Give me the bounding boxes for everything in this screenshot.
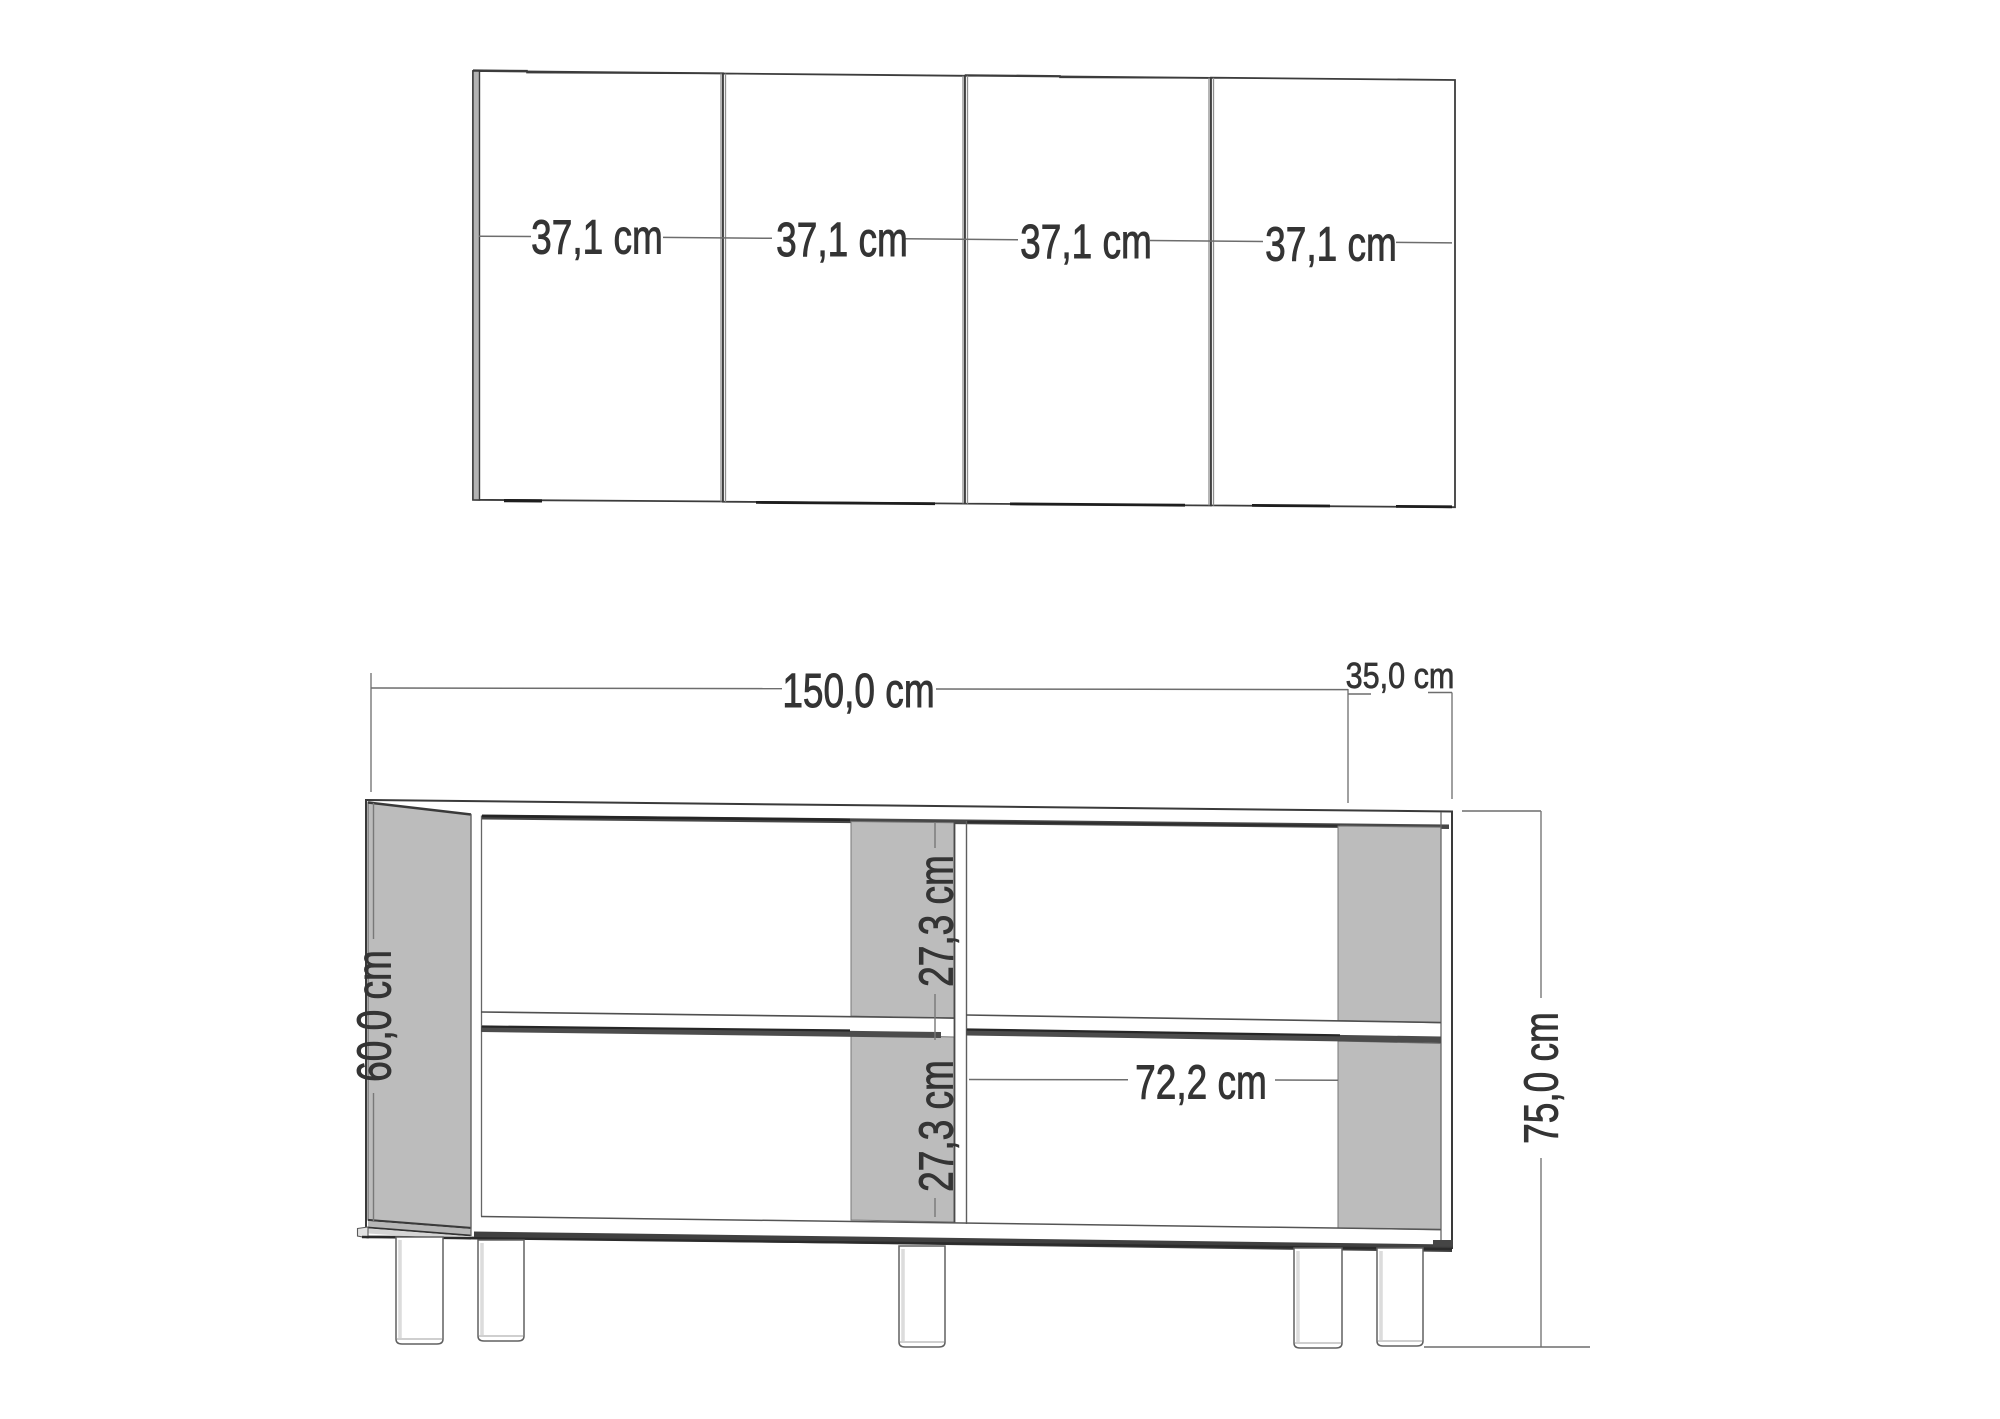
- svg-text:27,3 cm: 27,3 cm: [910, 855, 964, 987]
- svg-text:72,2 cm: 72,2 cm: [1135, 1056, 1267, 1110]
- svg-text:60,0 cm: 60,0 cm: [348, 950, 402, 1082]
- svg-text:37,1 cm: 37,1 cm: [1020, 216, 1152, 270]
- svg-text:150,0 cm: 150,0 cm: [782, 664, 934, 718]
- svg-text:75,0 cm: 75,0 cm: [1515, 1012, 1569, 1144]
- svg-text:35,0 cm: 35,0 cm: [1346, 657, 1455, 697]
- svg-text:37,1 cm: 37,1 cm: [531, 211, 663, 265]
- svg-text:37,1 cm: 37,1 cm: [776, 213, 908, 267]
- svg-text:27,3 cm: 27,3 cm: [910, 1060, 964, 1192]
- svg-text:37,1 cm: 37,1 cm: [1265, 218, 1397, 272]
